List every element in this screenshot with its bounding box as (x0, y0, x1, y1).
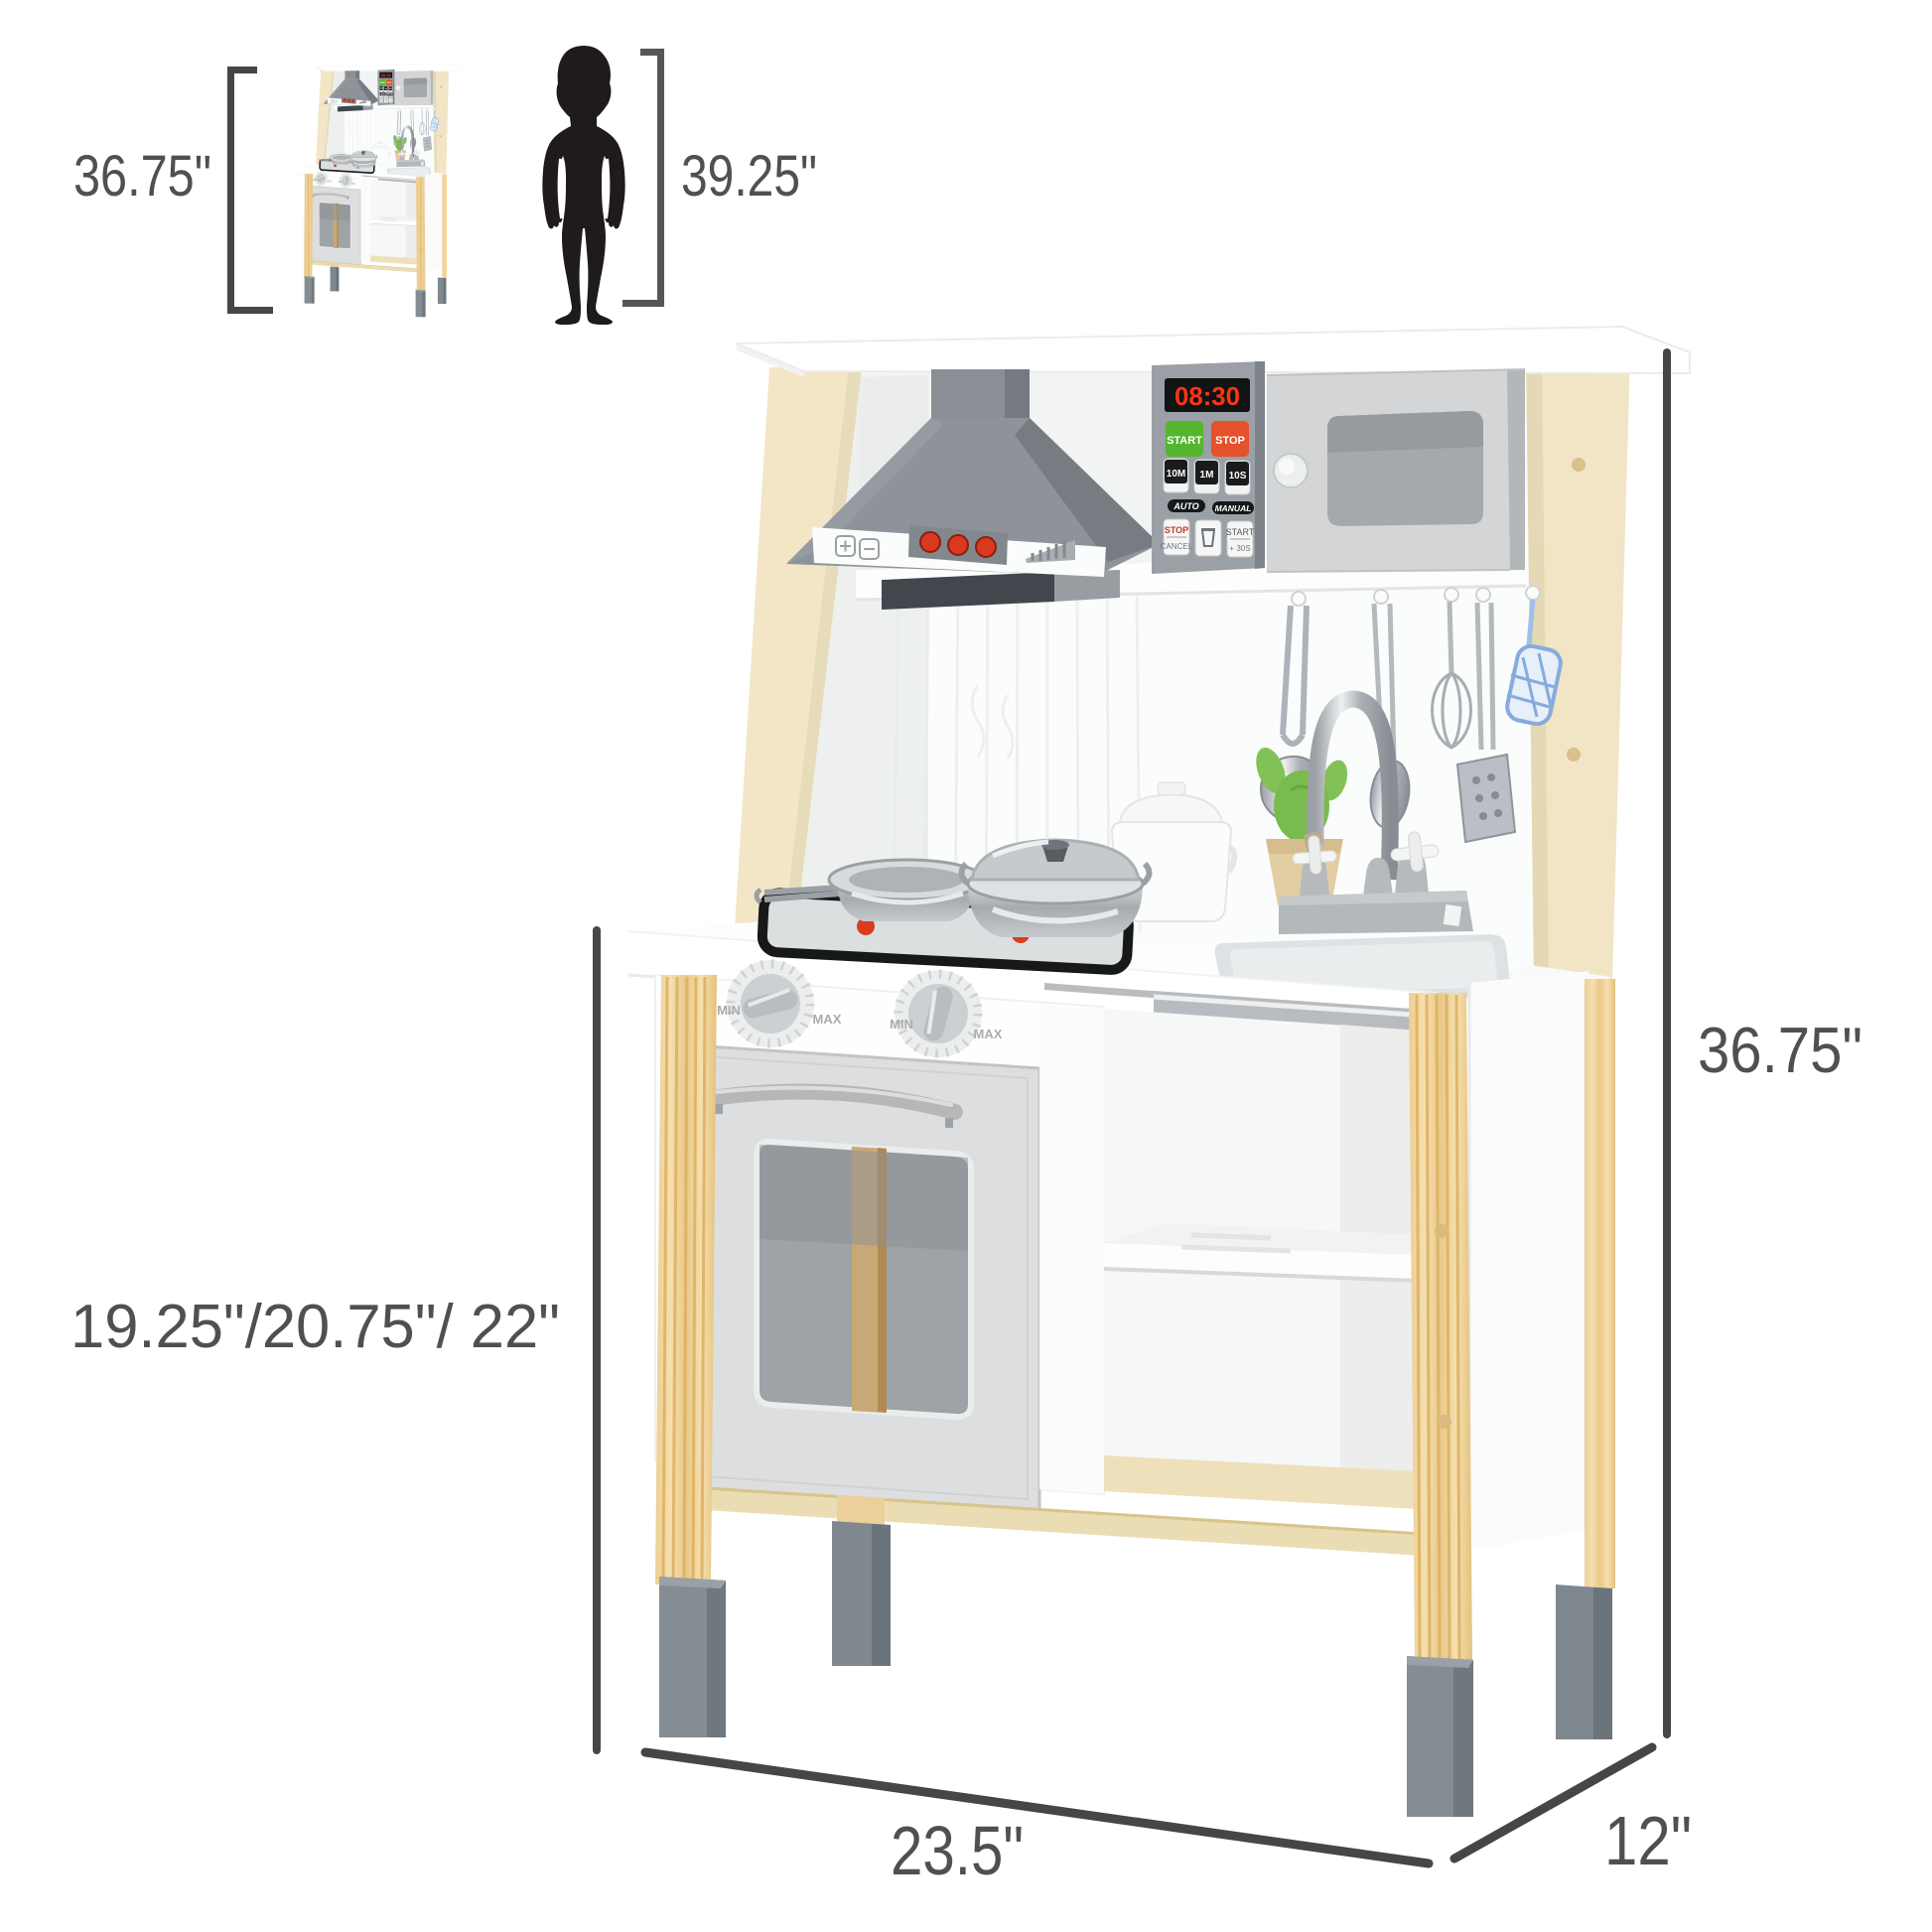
svg-text:19.25"/20.75"/ 22": 19.25"/20.75"/ 22" (70, 1293, 560, 1361)
svg-text:MIN: MIN (717, 1003, 741, 1018)
svg-text:36.75": 36.75" (1698, 1014, 1863, 1086)
svg-text:CANCEL: CANCEL (1161, 542, 1193, 551)
svg-text:AUTO: AUTO (1173, 501, 1198, 511)
svg-text:MANUAL: MANUAL (1215, 503, 1252, 513)
svg-text:STOP: STOP (1215, 435, 1245, 447)
svg-text:39.25": 39.25" (681, 144, 817, 208)
svg-text:START: START (1226, 527, 1255, 537)
svg-text:+ 30S: + 30S (1229, 544, 1250, 553)
svg-text:36.75": 36.75" (73, 144, 211, 208)
svg-text:08:30: 08:30 (1174, 381, 1240, 411)
svg-text:10M: 10M (1167, 469, 1185, 480)
svg-text:MAX: MAX (974, 1027, 1003, 1041)
svg-text:START: START (1167, 435, 1202, 447)
svg-text:1M: 1M (1200, 470, 1214, 481)
svg-text:MIN: MIN (890, 1017, 913, 1032)
svg-text:12": 12" (1604, 1802, 1692, 1879)
svg-text:MAX: MAX (813, 1012, 842, 1027)
svg-text:23.5": 23.5" (891, 1812, 1024, 1889)
svg-text:STOP: STOP (1165, 525, 1188, 535)
svg-text:10S: 10S (1229, 471, 1247, 482)
